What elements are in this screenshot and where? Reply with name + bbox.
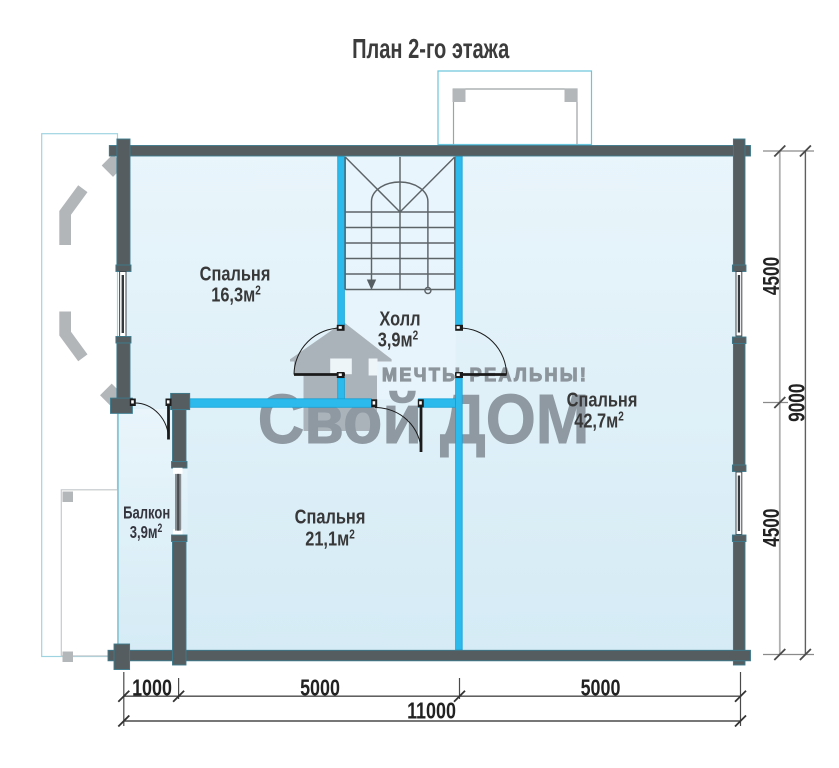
svg-text:Спальня: Спальня bbox=[200, 262, 271, 285]
svg-text:5000: 5000 bbox=[300, 675, 340, 701]
svg-text:Холл: Холл bbox=[379, 307, 420, 330]
svg-text:4500: 4500 bbox=[760, 509, 785, 547]
svg-text:4500: 4500 bbox=[760, 257, 785, 295]
svg-text:11000: 11000 bbox=[407, 699, 456, 725]
svg-text:План 2-го этажа: План 2-го этажа bbox=[352, 34, 510, 65]
svg-text:3,9м2: 3,9м2 bbox=[378, 328, 418, 351]
svg-text:5000: 5000 bbox=[581, 675, 621, 701]
svg-text:9000: 9000 bbox=[785, 384, 810, 422]
svg-text:21,1м2: 21,1м2 bbox=[305, 527, 355, 550]
svg-text:1000: 1000 bbox=[132, 675, 172, 701]
svg-text:Спальня: Спальня bbox=[567, 388, 638, 411]
svg-text:42,7м2: 42,7м2 bbox=[574, 409, 624, 432]
svg-text:Балкон: Балкон bbox=[123, 504, 170, 523]
svg-text:Спальня: Спальня bbox=[295, 505, 366, 528]
svg-text:Свой ДОМ: Свой ДОМ bbox=[258, 381, 590, 459]
svg-text:16,3м2: 16,3м2 bbox=[211, 283, 261, 306]
